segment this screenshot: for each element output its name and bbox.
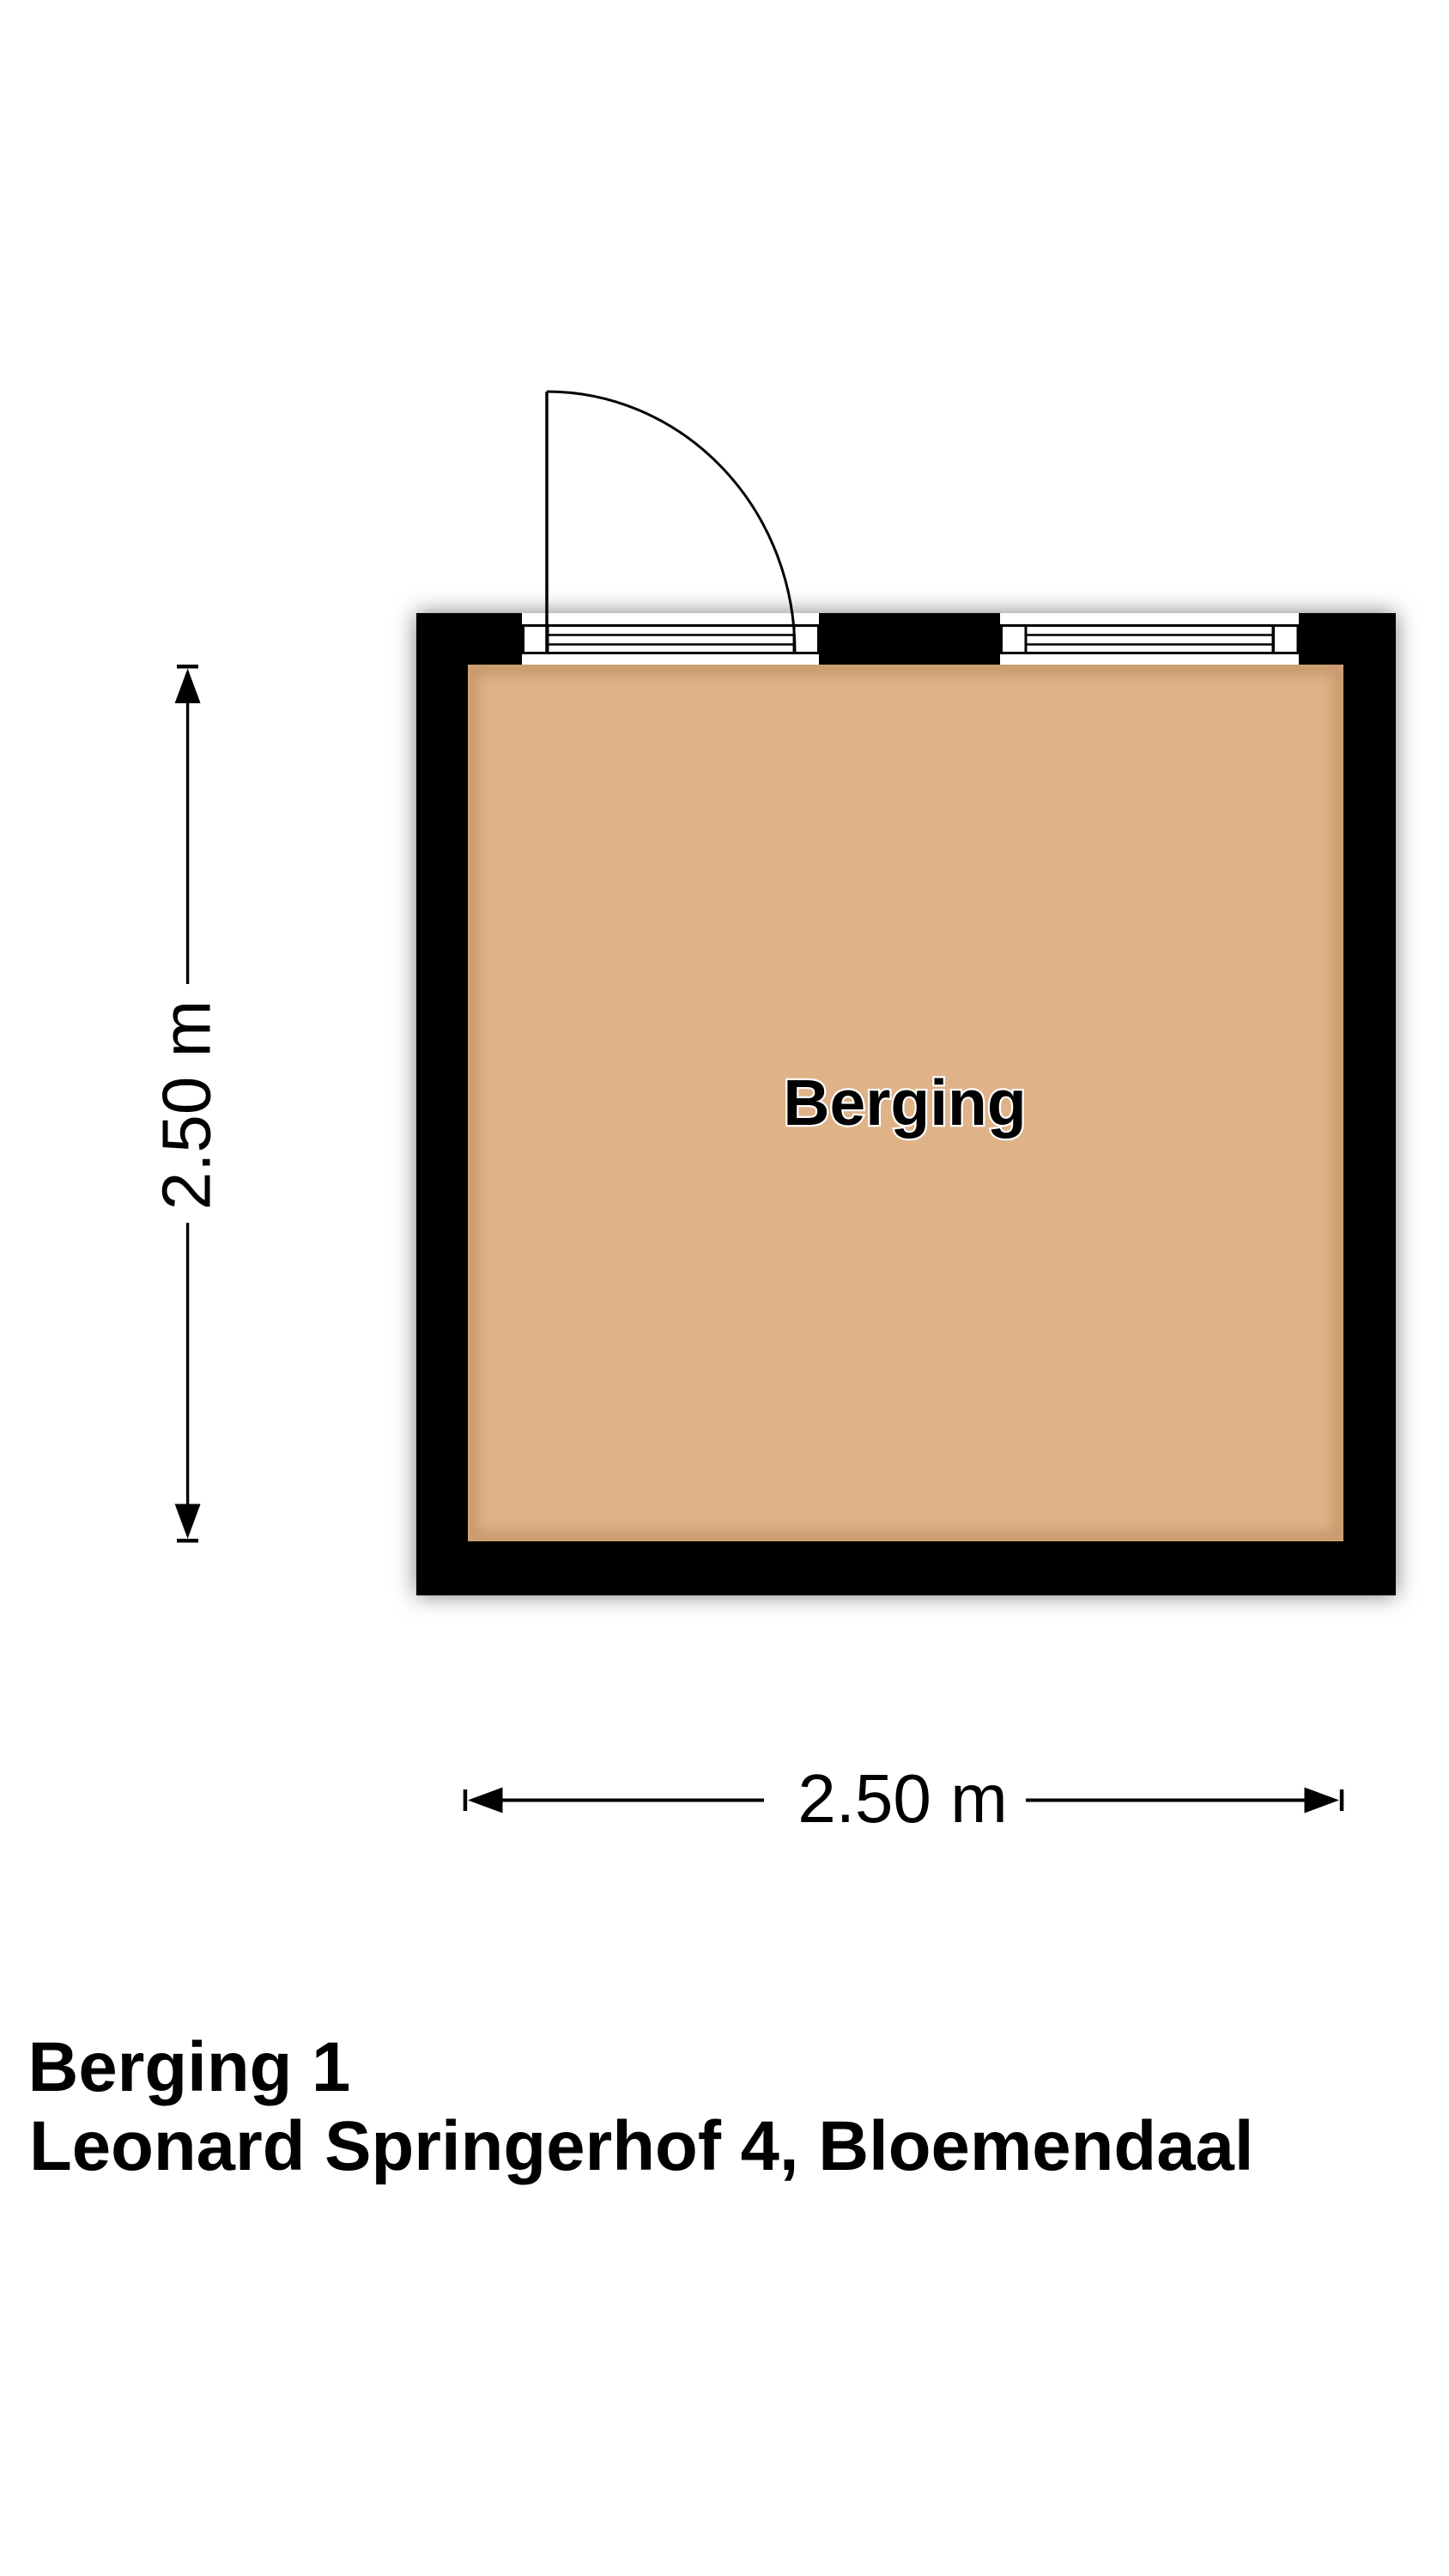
svg-text:2.50 m: 2.50 m <box>149 1000 225 1211</box>
svg-text:2.50 m: 2.50 m <box>797 1760 1008 1837</box>
svg-text:Berging 1: Berging 1 <box>28 2028 351 2106</box>
svg-text:Berging: Berging <box>783 1066 1026 1139</box>
svg-text:Leonard Springerhof 4, Bloemen: Leonard Springerhof 4, Bloemendaal <box>29 2107 1254 2185</box>
